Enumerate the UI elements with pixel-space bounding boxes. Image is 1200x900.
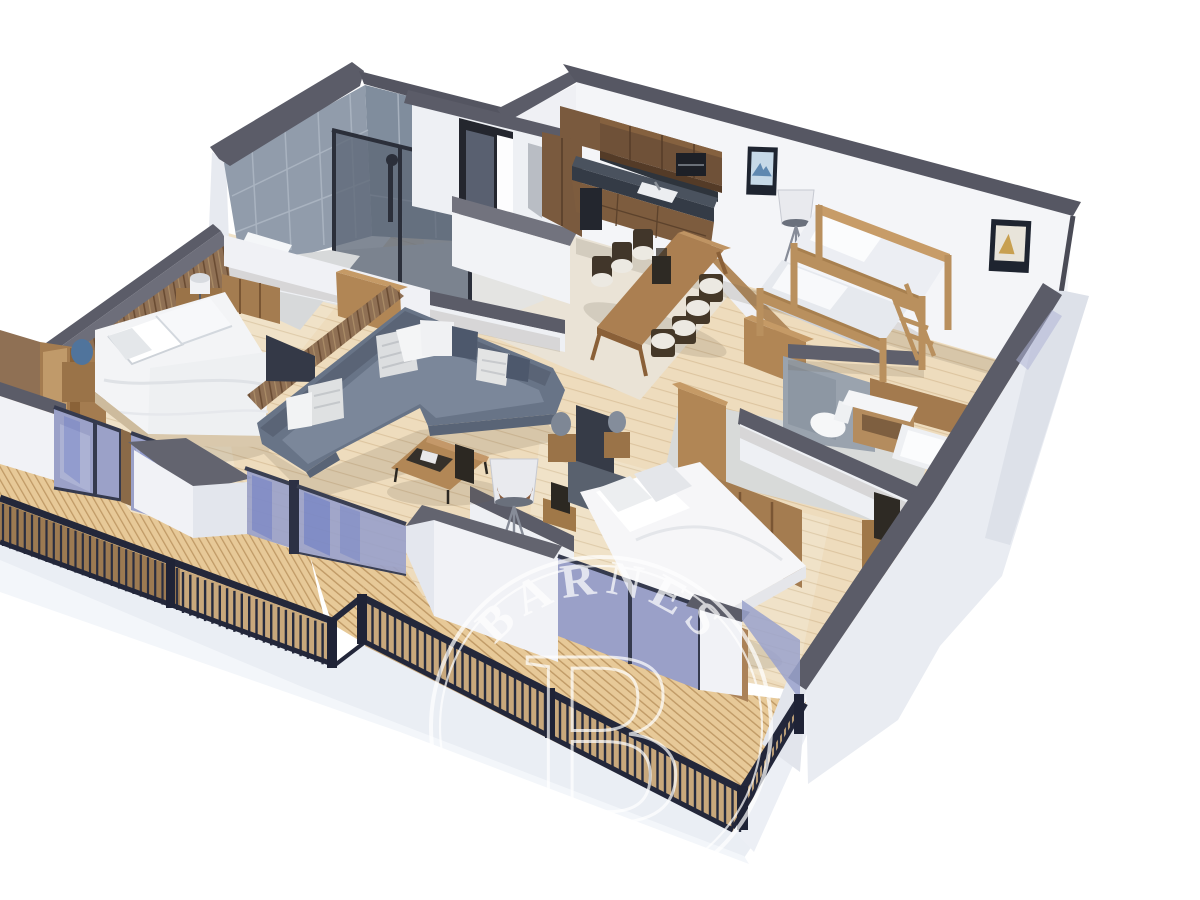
svg-text:B: B <box>520 597 688 877</box>
